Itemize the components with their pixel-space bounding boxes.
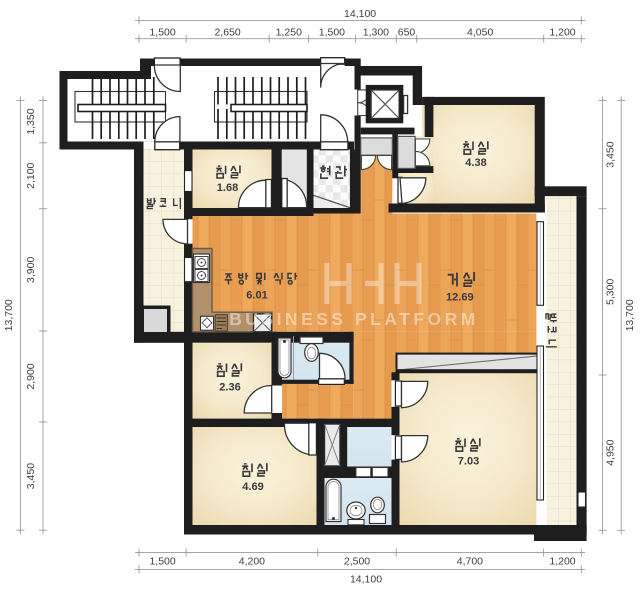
- svg-text:6.01: 6.01: [246, 290, 267, 302]
- svg-text:4.69: 4.69: [242, 481, 263, 493]
- svg-text:3,900: 3,900: [25, 257, 37, 283]
- svg-text:1,250: 1,250: [276, 27, 302, 39]
- svg-text:1,200: 1,200: [549, 27, 575, 39]
- svg-text:2.36: 2.36: [219, 382, 240, 394]
- svg-text:14,100: 14,100: [344, 8, 376, 20]
- svg-text:14,100: 14,100: [350, 574, 382, 586]
- svg-text:4,200: 4,200: [239, 556, 265, 568]
- svg-text:1,300: 1,300: [363, 27, 389, 39]
- svg-text:2,500: 2,500: [344, 556, 370, 568]
- svg-text:1,350: 1,350: [25, 108, 37, 134]
- svg-text:1,500: 1,500: [149, 27, 175, 39]
- svg-text:1,500: 1,500: [149, 556, 175, 568]
- svg-text:13,700: 13,700: [3, 299, 15, 331]
- svg-text:1,200: 1,200: [549, 556, 575, 568]
- svg-text:3,450: 3,450: [25, 463, 37, 489]
- svg-text:5,300: 5,300: [605, 279, 617, 305]
- svg-text:4,950: 4,950: [604, 439, 616, 465]
- svg-text:BUSINESS PLATFORM: BUSINESS PLATFORM: [229, 309, 479, 329]
- svg-text:2,100: 2,100: [25, 162, 37, 188]
- svg-text:650: 650: [398, 27, 416, 39]
- svg-text:7.03: 7.03: [458, 456, 479, 468]
- svg-text:4,050: 4,050: [467, 27, 493, 39]
- svg-text:4,700: 4,700: [457, 556, 483, 568]
- svg-text:1,500: 1,500: [319, 27, 345, 39]
- svg-text:4.38: 4.38: [465, 157, 486, 169]
- svg-text:2,900: 2,900: [25, 363, 37, 389]
- svg-text:3,450: 3,450: [605, 141, 617, 167]
- svg-text:13,700: 13,700: [624, 299, 636, 331]
- svg-text:12.69: 12.69: [446, 292, 474, 304]
- svg-text:2,650: 2,650: [214, 27, 240, 39]
- svg-text:1.68: 1.68: [217, 182, 238, 194]
